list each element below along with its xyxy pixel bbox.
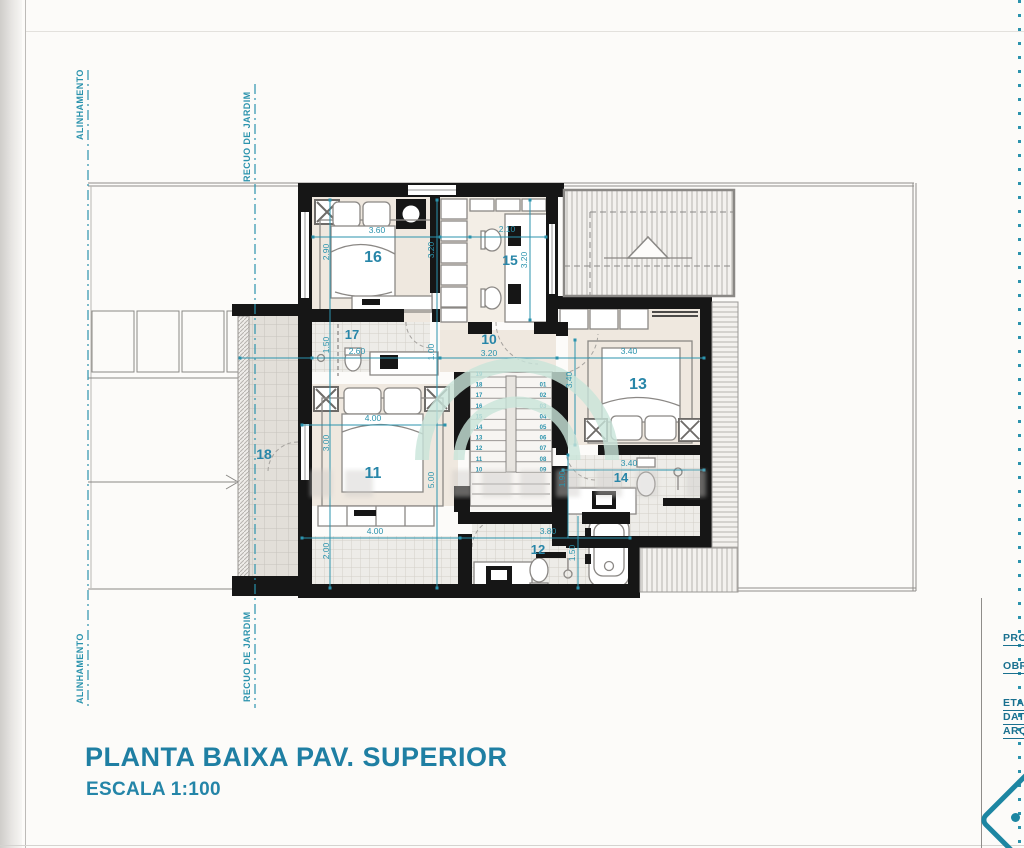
dim: 3.20	[519, 251, 529, 268]
alinhamento-label-bottom: ALINHAMENTO	[75, 633, 85, 704]
dim: 2.90	[321, 243, 331, 260]
stair-step: 17	[476, 393, 483, 399]
title-block-label-etapa: ETA	[1003, 697, 1024, 711]
dim: 5.00	[426, 471, 436, 488]
floor-plan-drawing: 19 18 17 16 15 14 13 12 11 10 01 02 03 0…	[0, 0, 1024, 848]
room-label-16: 16	[364, 249, 382, 266]
stair-step: 10	[476, 467, 483, 473]
balcony-rail	[238, 316, 249, 578]
alinhamento-label-top: ALINHAMENTO	[75, 69, 85, 140]
stair-step: 11	[476, 457, 483, 463]
stair-step: 18	[476, 383, 483, 389]
dim: 4.00	[365, 413, 382, 423]
dim: 3.40	[564, 371, 574, 388]
title-block-label-projeto: PRO	[1003, 632, 1024, 646]
dim: 2.10	[499, 224, 516, 234]
dim: 3.20	[481, 348, 498, 358]
dim: 3.40	[621, 346, 638, 356]
dim: 1.90	[557, 470, 567, 487]
drawing-title: PLANTA BAIXA PAV. SUPERIOR	[85, 742, 508, 773]
title-block-label-obra: OBR	[1003, 660, 1024, 674]
stair-step: 01	[540, 383, 547, 389]
room-label-14: 14	[614, 470, 629, 485]
drawing-scale: ESCALA 1:100	[86, 779, 221, 801]
recuo-label-top: RECUO DE JARDIM	[242, 91, 252, 182]
driveway	[88, 311, 251, 589]
room-label-11: 11	[365, 465, 382, 482]
dim: 1.50	[321, 336, 331, 353]
stair-step: 02	[540, 393, 547, 399]
roof-terrace	[564, 190, 734, 296]
sheet-border-top	[26, 31, 1024, 32]
stair-step: 13	[476, 436, 483, 442]
dim: 3.80	[540, 526, 557, 536]
dim: 1.00	[426, 343, 436, 360]
sheet-border-left	[25, 0, 26, 848]
dim: 2.00	[321, 542, 331, 559]
room-label-17: 17	[345, 327, 359, 342]
title-block-label-arquivo: ARQ	[1003, 725, 1024, 739]
guide-labels: ALINHAMENTO RECUO DE JARDIM ALINHAMENTO …	[75, 69, 252, 704]
dim: 3.20	[426, 241, 436, 258]
guide-lines	[88, 70, 255, 708]
stair-step: 08	[540, 457, 547, 463]
stair-step: 06	[540, 436, 547, 442]
recuo-label-bottom: RECUO DE JARDIM	[242, 611, 252, 702]
title-block-label-data: DAT	[1003, 711, 1024, 725]
title-block-border	[981, 598, 982, 848]
stair-step: 05	[540, 425, 547, 431]
dim: 3.40	[621, 458, 638, 468]
drawing-sheet: 19 18 17 16 15 14 13 12 11 10 01 02 03 0…	[0, 0, 1024, 848]
room-label-15: 15	[502, 252, 518, 268]
dim: 3.00	[321, 434, 331, 451]
room-label-13: 13	[629, 376, 647, 393]
dim: 2.60	[349, 346, 366, 356]
stair-step: 12	[476, 446, 483, 452]
firm-logo-dot	[1011, 813, 1020, 822]
dim: 3.60	[369, 225, 386, 235]
room-label-10: 10	[481, 331, 497, 347]
stair-step: 07	[540, 446, 547, 452]
room-label-12: 12	[531, 542, 545, 557]
sheet-border-bottom	[0, 845, 1024, 846]
room-label-18: 18	[256, 446, 272, 462]
dim: 4.00	[367, 526, 384, 536]
dim: 1.50	[567, 544, 577, 561]
